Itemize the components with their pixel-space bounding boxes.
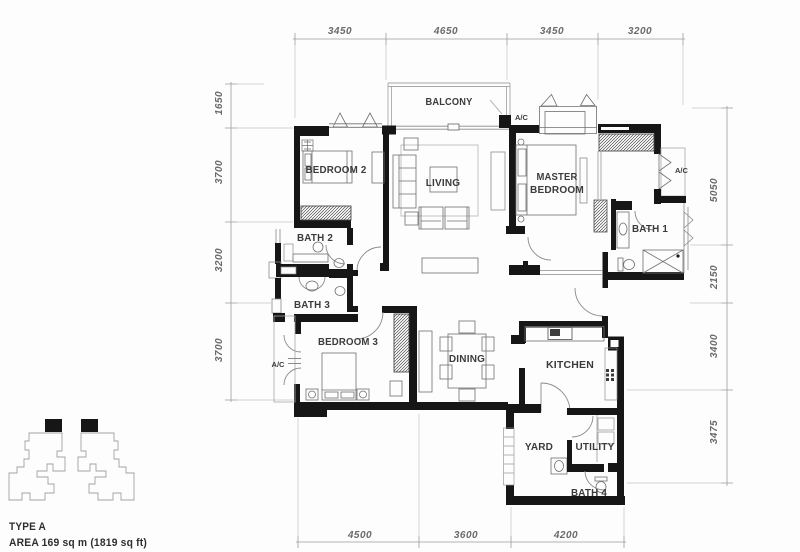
svg-text:3200: 3200 xyxy=(214,248,225,272)
svg-text:A/C: A/C xyxy=(515,113,529,122)
svg-text:DINING: DINING xyxy=(449,354,485,365)
svg-text:KITCHEN: KITCHEN xyxy=(546,360,594,371)
svg-text:3475: 3475 xyxy=(709,420,720,444)
svg-text:4200: 4200 xyxy=(553,530,578,541)
svg-text:AREA 169 sq m (1819 sq ft): AREA 169 sq m (1819 sq ft) xyxy=(9,537,147,549)
svg-text:BATH 1: BATH 1 xyxy=(632,224,668,235)
svg-text:1650: 1650 xyxy=(214,91,225,115)
svg-text:TYPE A: TYPE A xyxy=(9,521,46,533)
svg-text:MASTER: MASTER xyxy=(537,172,579,183)
svg-text:3200: 3200 xyxy=(628,26,652,37)
svg-text:3450: 3450 xyxy=(328,26,352,37)
svg-text:5050: 5050 xyxy=(709,178,720,202)
svg-text:UTILITY: UTILITY xyxy=(576,442,615,453)
svg-text:3400: 3400 xyxy=(709,334,720,358)
svg-text:BATH 2: BATH 2 xyxy=(297,233,333,244)
svg-text:4500: 4500 xyxy=(347,530,372,541)
svg-text:4650: 4650 xyxy=(433,26,458,37)
svg-text:3600: 3600 xyxy=(454,530,478,541)
svg-text:BATH 3: BATH 3 xyxy=(294,300,330,311)
svg-text:A/C: A/C xyxy=(272,360,286,369)
svg-text:YARD: YARD xyxy=(525,442,553,453)
svg-text:A/C: A/C xyxy=(675,166,689,175)
svg-text:2150: 2150 xyxy=(709,265,720,290)
svg-text:3700: 3700 xyxy=(214,160,225,184)
svg-text:BEDROOM 2: BEDROOM 2 xyxy=(306,165,367,176)
svg-text:BALCONY: BALCONY xyxy=(426,97,473,108)
svg-text:LIVING: LIVING xyxy=(426,178,461,189)
svg-text:3450: 3450 xyxy=(540,26,564,37)
svg-text:BEDROOM 3: BEDROOM 3 xyxy=(318,337,378,348)
svg-text:3700: 3700 xyxy=(214,338,225,362)
svg-text:BEDROOM: BEDROOM xyxy=(530,185,584,196)
svg-text:BATH 4: BATH 4 xyxy=(571,488,607,499)
